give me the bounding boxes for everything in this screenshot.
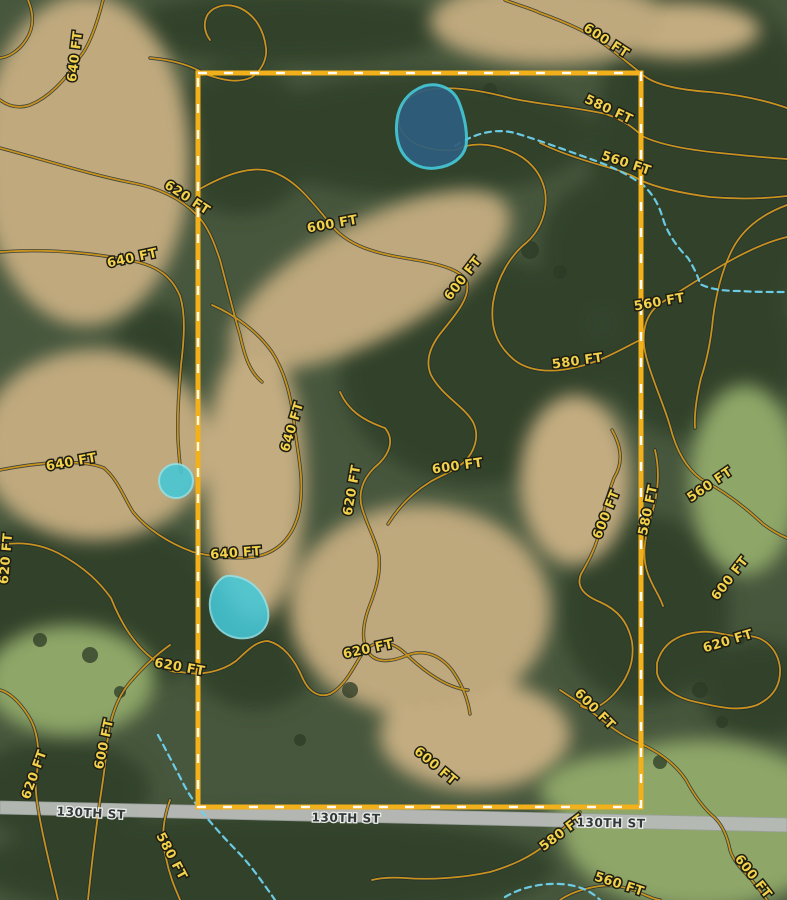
map-canvas[interactable]: 640 FT600 FT580 FT560 FT620 FT600 FT640 …	[0, 0, 787, 900]
road-name-label: 130TH ST	[576, 815, 646, 830]
terrain-base	[0, 0, 787, 900]
pond-small-west	[159, 464, 193, 498]
pond-north	[396, 85, 466, 169]
map-viewport: 640 FT600 FT580 FT560 FT620 FT600 FT640 …	[0, 0, 787, 900]
road-name-label: 130TH ST	[311, 810, 381, 825]
